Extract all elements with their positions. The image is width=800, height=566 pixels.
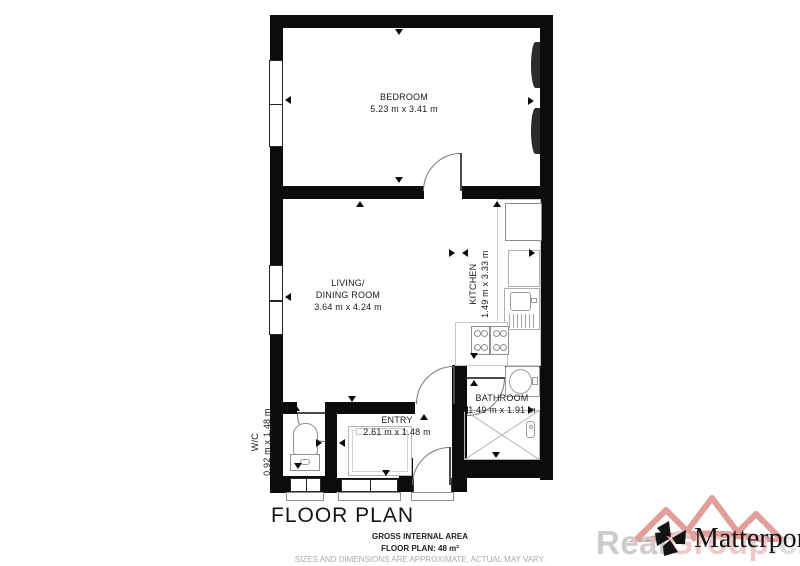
matterport-logo: Matterport™ [650,518,800,560]
bedroom-door-leaf [460,153,462,191]
matterport-wordmark: Matterport™ [694,523,800,555]
page-title: FLOOR PLAN [271,504,414,528]
kitchen-appliance [508,250,540,287]
dimension-arrow [529,249,535,257]
living-name-line1: LIVING/ [268,277,428,289]
wc-door-leaf [297,412,325,414]
window-wc-sill [286,492,324,501]
bathroom-name: BATHROOM [452,392,552,404]
dimension-arrow [356,201,364,207]
living-entry-door-arc [416,366,454,404]
shower-control-knob [529,425,533,429]
living-name-line2: DINING ROOM [268,289,428,301]
dimension-arrow [316,439,322,447]
dimension-arrow [456,440,462,448]
front-door-sill [411,492,454,501]
gross-internal-area-label: GROSS INTERNAL AREA [270,531,570,543]
dimension-arrow [285,96,291,104]
shower-control [526,421,535,438]
burner-icon [500,344,507,351]
kitchen-sink-basin [510,292,531,311]
wall-living-entry-b [325,402,415,414]
matterport-pinwheel-icon [650,518,690,560]
dimension-arrow [493,201,501,207]
dimension-arrow [528,97,534,105]
wc-size: 0.92 m x 1.48 m [261,387,273,497]
kitchen-size: 1.49 m x 3.33 m [479,224,491,344]
entry-label: ENTRY 2.61 m x 1.48 m [327,414,467,438]
toilet-bowl [293,423,318,456]
bathroom-sink-basin [509,369,532,394]
window-entry [341,479,398,492]
disclaimer-text: SIZES AND DIMENSIONS ARE APPROXIMATE, AC… [270,554,570,566]
bedroom-label: BEDROOM 5.23 m x 3.41 m [324,91,484,115]
bathroom-label: BATHROOM 1.49 m x 1.91 m [452,392,552,416]
dimension-arrow [292,405,300,411]
wc-label: W/C 0.92 m x 1.48 m [249,387,273,497]
burner-icon [500,330,507,337]
window-entry-sill [338,492,401,501]
kitchen-label: KITCHEN 1.49 m x 3.33 m [467,224,491,344]
burner-icon [493,344,500,351]
fridge [505,203,542,241]
bedroom-size: 5.23 m x 3.41 m [324,103,484,115]
wc-name: W/C [249,387,261,497]
footer-notes: GROSS INTERNAL AREA FLOOR PLAN: 48 m² SI… [270,531,570,566]
dimension-arrow [294,463,302,469]
burner-icon [493,330,500,337]
floor-plan-page: BEDROOM 5.23 m x 3.41 m LIVING/ DINING R… [0,0,800,566]
entry-name: ENTRY [327,414,467,426]
kitchen-faucet [531,298,537,303]
window-wc [290,478,321,492]
dimension-arrow [449,249,455,257]
front-door-arc [412,447,450,485]
entry-size: 2.61 m x 1.48 m [327,426,467,438]
dimension-arrow [339,439,345,447]
dimension-arrow [348,396,356,402]
dimension-arrow [470,353,478,359]
wall-bump-top [531,42,540,88]
dimension-arrow [470,380,478,386]
dimension-arrow [395,29,403,35]
wall-top [270,15,553,28]
wall-bathroom-bottom [452,460,553,478]
bathroom-door-leaf [467,377,505,379]
window-bedroom [269,60,283,147]
front-door-leaf [449,447,451,485]
bedroom-door-arc [423,153,461,191]
kitchen-name: KITCHEN [467,224,479,344]
dimension-arrow [276,439,282,447]
burner-icon [474,344,481,351]
kitchen-drainer [509,314,537,328]
stove-right [490,326,509,355]
wall-bedroom-living-b [462,186,540,199]
wall-bump-bottom [531,108,540,154]
bathroom-faucet [532,377,538,385]
living-label: LIVING/ DINING ROOM 3.64 m x 4.24 m [268,277,428,313]
dimension-arrow [382,470,390,476]
burner-icon [481,344,488,351]
dimension-arrow [492,452,500,458]
wall-bedroom-living-a [283,186,424,199]
living-size: 3.64 m x 4.24 m [268,301,428,313]
bathroom-size: 1.49 m x 1.91 m [452,404,552,416]
dimension-arrow [395,177,403,183]
bedroom-name: BEDROOM [324,91,484,103]
floor-plan-area-value: FLOOR PLAN: 48 m² [270,543,570,555]
